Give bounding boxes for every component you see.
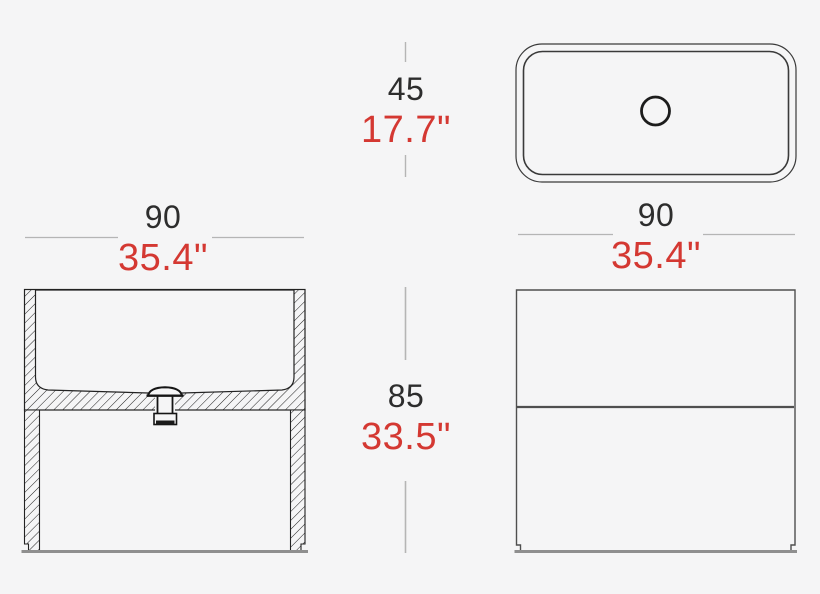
basin-front-section-view: [22, 290, 309, 552]
washbasin-dimension-drawing: 45 17.7" 90 35.4" 90 35.4" 85 33.5": [0, 0, 820, 594]
drain-cap-dome: [148, 387, 182, 395]
drawing-canvas: [0, 0, 820, 594]
outer-rim-outline: [516, 44, 796, 182]
bowl-interior: [36, 290, 295, 393]
pedestal-wall-left: [25, 410, 40, 551]
basin-side-view: [515, 290, 798, 552]
drain-hole-icon: [642, 97, 670, 125]
pedestal-wall-right: [291, 410, 306, 551]
drain-coupling-cap: [156, 421, 175, 425]
inner-rim-outline: [524, 52, 789, 175]
basin-top-view: [516, 44, 796, 182]
side-view-outline: [517, 290, 796, 551]
